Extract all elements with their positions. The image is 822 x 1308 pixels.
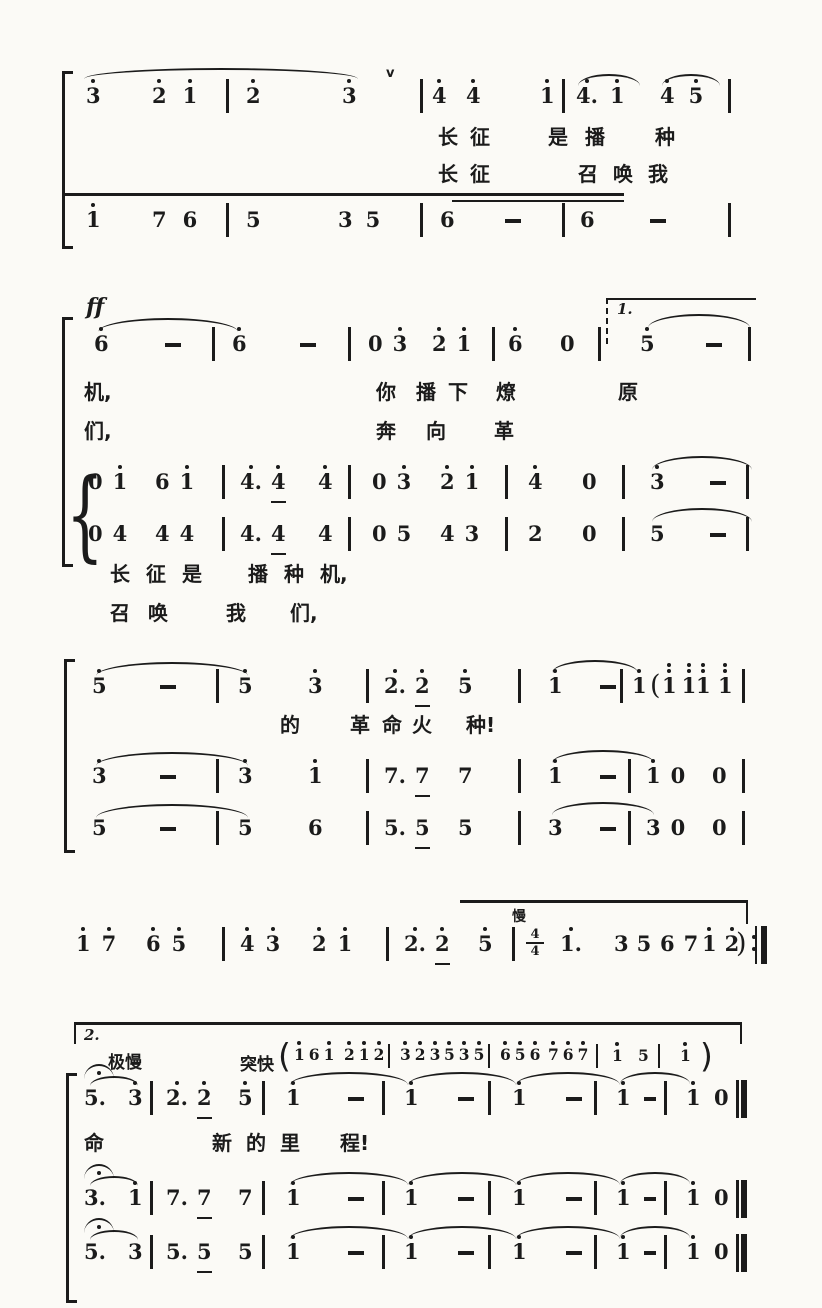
note-digit: 7 bbox=[684, 932, 699, 956]
note-digit: 1 bbox=[324, 1046, 335, 1064]
beam-group: 323 bbox=[400, 1046, 440, 1064]
note: 0 bbox=[712, 816, 727, 840]
octave-dots bbox=[317, 927, 321, 931]
octave-dots bbox=[175, 1081, 179, 1085]
dash-extension bbox=[458, 1097, 474, 1101]
note-digit: 1 bbox=[686, 1240, 701, 1264]
barline bbox=[628, 759, 631, 793]
note-digit: 3 bbox=[465, 522, 480, 546]
note: 1 bbox=[632, 674, 647, 698]
lyric-extension-line bbox=[452, 200, 624, 202]
note-digit: 7 bbox=[458, 764, 473, 788]
barline bbox=[562, 79, 565, 113]
octave-dots bbox=[393, 669, 397, 673]
note-digit: 2. bbox=[166, 1086, 188, 1110]
note-digit: 6 bbox=[94, 332, 109, 356]
note-digit: 1 bbox=[404, 1186, 419, 1210]
note-digit: 7 bbox=[578, 1046, 589, 1064]
note: 5 bbox=[238, 674, 253, 698]
note-digit: 1 bbox=[548, 764, 563, 788]
note-digit: 3 bbox=[128, 1240, 143, 1264]
note-digit: 5 bbox=[397, 522, 412, 546]
dash-extension bbox=[566, 1197, 582, 1201]
note-digit: 6 bbox=[309, 1046, 320, 1064]
note-digit: 3 bbox=[397, 470, 412, 494]
octave-dots bbox=[545, 79, 549, 83]
note-digit: 1 bbox=[128, 1186, 143, 1210]
lyric-syllable: 向 bbox=[426, 420, 446, 443]
note-digit: 3 bbox=[338, 208, 353, 232]
dash-extension bbox=[566, 1251, 582, 1255]
note: 5. bbox=[84, 1086, 106, 1110]
note: 1 bbox=[128, 1186, 143, 1210]
barline bbox=[382, 1081, 385, 1115]
note: 1 bbox=[512, 1186, 527, 1210]
octave-dots bbox=[157, 79, 161, 83]
beam-group: 05 bbox=[372, 522, 411, 546]
note: 1 bbox=[404, 1086, 419, 1110]
dash-extension bbox=[348, 1251, 364, 1255]
note-digit: 1 bbox=[646, 764, 661, 788]
note: 5 bbox=[238, 816, 253, 840]
second-ending-bracket bbox=[74, 1022, 742, 1044]
octave-dots bbox=[243, 1081, 247, 1085]
note: 1 bbox=[404, 1240, 419, 1264]
lyric-syllable: 征 bbox=[146, 563, 166, 586]
final-barline bbox=[736, 1234, 747, 1272]
note: 0 bbox=[582, 470, 597, 494]
barline bbox=[628, 811, 631, 845]
note-digit: 2 bbox=[344, 1046, 355, 1064]
beam-group: 67 bbox=[660, 932, 698, 956]
voice-brace: { bbox=[66, 462, 104, 570]
note-digit: 1 bbox=[686, 1186, 701, 1210]
slur-tie bbox=[96, 804, 248, 818]
beam-group: 44 bbox=[155, 522, 194, 546]
barline bbox=[150, 1081, 153, 1115]
slur-tie bbox=[578, 74, 640, 86]
lyric-syllable: 是 bbox=[548, 126, 568, 149]
barline bbox=[382, 1181, 385, 1215]
note: 4 bbox=[528, 470, 543, 494]
note-digit: 2 bbox=[435, 932, 450, 956]
note-digit: 4 bbox=[155, 522, 170, 546]
barline bbox=[222, 927, 225, 961]
note-digit: 4 bbox=[528, 470, 543, 494]
note-digit: 1 bbox=[696, 674, 711, 698]
barline bbox=[366, 669, 369, 703]
note-digit: 6 bbox=[308, 816, 323, 840]
beam-group: 76 bbox=[152, 208, 197, 232]
note-digit: 5. bbox=[384, 816, 406, 840]
note: 3 bbox=[128, 1240, 143, 1264]
dash-extension bbox=[600, 775, 616, 779]
note-digit: 1 bbox=[286, 1240, 301, 1264]
note-digit: 5 bbox=[444, 1046, 455, 1064]
note-digit: 3 bbox=[238, 764, 253, 788]
note-digit: 6 bbox=[155, 470, 170, 494]
note: 1 bbox=[548, 764, 563, 788]
note-digit: 0 bbox=[582, 522, 597, 546]
beam-group: 21 bbox=[432, 332, 471, 356]
barline bbox=[492, 327, 495, 361]
slur-tie bbox=[96, 662, 248, 676]
octave-dots bbox=[81, 927, 85, 931]
note: 6 bbox=[94, 332, 109, 356]
note-digit: 2 bbox=[528, 522, 543, 546]
note-digit: 2. bbox=[404, 932, 426, 956]
note: 3 bbox=[342, 84, 357, 108]
note: 5 bbox=[246, 208, 261, 232]
note-digit: 6 bbox=[580, 208, 595, 232]
barline bbox=[348, 517, 351, 551]
note-digit: 0 bbox=[372, 470, 387, 494]
note-digit: 1 bbox=[294, 1046, 305, 1064]
note-digit: 5 bbox=[415, 816, 430, 840]
note-digit: 1 bbox=[616, 1240, 631, 1264]
beam-group: 2.2 bbox=[384, 674, 430, 698]
note: 3 bbox=[548, 816, 563, 840]
note: 0 bbox=[714, 1186, 729, 1210]
note-digit: 6 bbox=[530, 1046, 541, 1064]
note-digit: 5 bbox=[366, 208, 381, 232]
dash-extension bbox=[160, 685, 176, 689]
ending-label: 1. bbox=[617, 302, 633, 317]
note: 4 bbox=[432, 84, 447, 108]
note-digit: 6 bbox=[146, 932, 161, 956]
octave-dots bbox=[413, 927, 417, 931]
octave-dots bbox=[347, 79, 351, 83]
note: 5 bbox=[638, 1046, 649, 1065]
note-digit: 3 bbox=[650, 470, 665, 494]
beam-group: 03 bbox=[368, 332, 407, 356]
barline bbox=[518, 669, 521, 703]
barline bbox=[382, 1235, 385, 1269]
parenthesis: ) bbox=[736, 930, 747, 957]
dash-extension bbox=[348, 1097, 364, 1101]
lyric-syllable: 我 bbox=[226, 602, 246, 625]
dash-extension bbox=[644, 1197, 656, 1201]
note: 1 bbox=[512, 1086, 527, 1110]
note-digit: 2 bbox=[415, 1046, 426, 1064]
octave-dots bbox=[440, 927, 444, 931]
slur-tie bbox=[90, 1176, 138, 1186]
lyric-syllable: 下 bbox=[448, 381, 468, 404]
lyric-syllable: 种 bbox=[284, 563, 304, 586]
dash-extension bbox=[160, 775, 176, 779]
note-digit: 2 bbox=[432, 332, 447, 356]
note-digit: 5 bbox=[689, 84, 704, 108]
final-barline bbox=[736, 1180, 747, 1218]
note-digit: 2 bbox=[440, 470, 455, 494]
dash-extension bbox=[644, 1251, 656, 1255]
beam-group: 2.2 bbox=[404, 932, 450, 956]
barline bbox=[226, 203, 229, 237]
beam-group: 11 bbox=[662, 674, 696, 698]
beam-group: 35 bbox=[338, 208, 380, 232]
lyric-syllable: 原 bbox=[618, 381, 638, 404]
slur-tie bbox=[408, 1226, 516, 1239]
note-digit: 1 bbox=[540, 84, 555, 108]
note: 5 bbox=[92, 816, 107, 840]
lyric-syllable: 命 bbox=[382, 714, 402, 737]
note-digit: 5 bbox=[92, 674, 107, 698]
note-digit: 5 bbox=[246, 208, 261, 232]
octave-dots bbox=[730, 927, 734, 931]
note-digit: 2 bbox=[246, 84, 261, 108]
octave-dots bbox=[118, 465, 122, 469]
lyric-syllable: 长 bbox=[110, 563, 130, 586]
barline bbox=[518, 759, 521, 793]
octave-dots bbox=[91, 79, 95, 83]
note: 3. bbox=[84, 1186, 106, 1210]
slur-tie bbox=[408, 1172, 516, 1185]
note-digit: 0 bbox=[712, 816, 727, 840]
dash-extension bbox=[505, 219, 521, 223]
note: 1. bbox=[560, 932, 582, 956]
barline bbox=[262, 1235, 265, 1269]
lyric-syllable: 播 bbox=[248, 563, 268, 586]
note-digit: 5 bbox=[515, 1046, 526, 1064]
note-digit: 3 bbox=[92, 764, 107, 788]
barline bbox=[746, 465, 749, 499]
slur-tie bbox=[84, 68, 358, 79]
note-digit: 7 bbox=[152, 208, 167, 232]
barline bbox=[366, 759, 369, 793]
barline bbox=[420, 203, 423, 237]
note: 1 bbox=[286, 1086, 301, 1110]
note-digit: 5 bbox=[238, 674, 253, 698]
note-digit: 4. bbox=[240, 470, 262, 494]
barline bbox=[505, 517, 508, 551]
barline bbox=[488, 1044, 490, 1068]
note-digit: 1 bbox=[610, 84, 625, 108]
note-digit: 4 bbox=[466, 84, 481, 108]
note-digit: 5 bbox=[638, 1047, 649, 1065]
slur-tie bbox=[620, 1072, 690, 1084]
beam-group: 2.2 bbox=[166, 1086, 212, 1110]
beam-group: 43 bbox=[240, 932, 280, 956]
barline bbox=[594, 1235, 597, 1269]
note-digit: 1 bbox=[286, 1086, 301, 1110]
octave-dots bbox=[343, 927, 347, 931]
barline bbox=[488, 1235, 491, 1269]
note-digit: 0 bbox=[671, 764, 686, 788]
note-digit: 1 bbox=[616, 1186, 631, 1210]
barline bbox=[420, 79, 423, 113]
octave-dots bbox=[691, 1235, 695, 1239]
barline bbox=[226, 79, 229, 113]
note-digit: 1. bbox=[560, 932, 582, 956]
beam-group: 17 bbox=[76, 932, 116, 956]
note: 5 bbox=[478, 932, 493, 956]
beam-group: 21 bbox=[152, 84, 197, 108]
note-digit: 6 bbox=[183, 208, 198, 232]
note-digit: 7 bbox=[197, 1186, 212, 1210]
note: 1 bbox=[512, 1240, 527, 1264]
dash-extension bbox=[348, 1197, 364, 1201]
beam-group: 161 bbox=[294, 1046, 334, 1064]
note-digit: 5 bbox=[92, 816, 107, 840]
note-digit: 1 bbox=[465, 470, 480, 494]
barline bbox=[386, 927, 389, 961]
note: 7 bbox=[238, 1186, 253, 1210]
note-digit: 1 bbox=[86, 208, 101, 232]
beam-group: 03 bbox=[372, 470, 411, 494]
lyric-syllable: 长 bbox=[438, 163, 458, 186]
octave-dots bbox=[107, 927, 111, 931]
octave-dots bbox=[701, 663, 705, 673]
barline bbox=[348, 465, 351, 499]
beam-line bbox=[435, 963, 450, 965]
lyric-syllable: 长 bbox=[438, 126, 458, 149]
note: 0 bbox=[714, 1086, 729, 1110]
barline bbox=[222, 465, 225, 499]
octave-dots bbox=[177, 927, 181, 931]
octave-dots bbox=[151, 927, 155, 931]
beam-group: 30 bbox=[646, 816, 685, 840]
slur-tie bbox=[652, 508, 752, 522]
slur-tie bbox=[620, 1172, 690, 1184]
note: 1 bbox=[616, 1186, 631, 1210]
lyric-syllable: 革 bbox=[494, 420, 514, 443]
note-digit: 4 bbox=[113, 522, 128, 546]
note-digit: 3 bbox=[128, 1086, 143, 1110]
lyric-syllable: 播 bbox=[416, 381, 436, 404]
dash-extension bbox=[650, 219, 666, 223]
lyric-syllable: 火 bbox=[412, 714, 432, 737]
note-digit: 2. bbox=[384, 674, 406, 698]
note: 1 bbox=[616, 1086, 631, 1110]
note-digit: 2 bbox=[152, 84, 167, 108]
note-digit: 0 bbox=[714, 1186, 729, 1210]
lyric-syllable: 征 bbox=[470, 163, 490, 186]
note: 1 bbox=[718, 674, 733, 698]
note-digit: 5 bbox=[474, 1046, 485, 1064]
system-bracket bbox=[64, 660, 73, 852]
beam-group: 10 bbox=[646, 764, 685, 788]
octave-dots bbox=[483, 927, 487, 931]
note-digit: 1 bbox=[612, 1047, 623, 1065]
system-bracket bbox=[66, 1074, 75, 1302]
note: 4 bbox=[318, 470, 333, 494]
note-digit: 1 bbox=[338, 932, 353, 956]
note: 1 bbox=[548, 674, 563, 698]
octave-dots bbox=[313, 669, 317, 673]
barline bbox=[622, 465, 625, 499]
note-digit: 4 bbox=[240, 932, 255, 956]
barline bbox=[388, 1044, 390, 1068]
note-digit: 0 bbox=[714, 1086, 729, 1110]
note-digit: 4 bbox=[180, 522, 195, 546]
octave-dots bbox=[276, 465, 280, 469]
octave-dots bbox=[202, 1081, 206, 1085]
slur-tie bbox=[290, 1172, 408, 1185]
note-digit: 7 bbox=[548, 1046, 559, 1064]
note: 5 bbox=[238, 1086, 253, 1110]
note-digit: 5 bbox=[238, 1086, 253, 1110]
barline bbox=[742, 669, 745, 703]
beam-group: 212 bbox=[344, 1046, 384, 1064]
note: 7 bbox=[458, 764, 473, 788]
beam-group: 4.4 bbox=[240, 470, 286, 494]
parenthesis: ( bbox=[650, 672, 661, 699]
barline bbox=[150, 1235, 153, 1269]
sheet-music-page: 321234414.14517653566长征是播种长征召唤我v66032160… bbox=[0, 0, 822, 1308]
octave-dots bbox=[687, 663, 691, 673]
note-digit: 1 bbox=[512, 1086, 527, 1110]
octave-dots bbox=[271, 927, 275, 931]
note: 6 bbox=[232, 332, 247, 356]
note-digit: 3 bbox=[266, 932, 281, 956]
note-digit: 3 bbox=[646, 816, 661, 840]
breath-mark-icon: v bbox=[386, 66, 394, 81]
note-digit: 1 bbox=[457, 332, 472, 356]
note-digit: 1 bbox=[662, 674, 677, 698]
octave-dots bbox=[185, 465, 189, 469]
lyric-syllable: 们, bbox=[84, 420, 112, 443]
slur-tie bbox=[90, 1230, 138, 1240]
note-digit: 6 bbox=[508, 332, 523, 356]
barline bbox=[505, 465, 508, 499]
barline bbox=[222, 517, 225, 551]
note: 3 bbox=[308, 674, 323, 698]
barline bbox=[742, 811, 745, 845]
barline bbox=[658, 1044, 660, 1068]
note-digit: 4. bbox=[240, 522, 262, 546]
octave-dots bbox=[723, 663, 727, 673]
note: 6 bbox=[508, 332, 523, 356]
beam-group: 45 bbox=[660, 84, 703, 108]
slur-tie bbox=[552, 802, 654, 815]
note-digit: 0 bbox=[582, 470, 597, 494]
note-digit: 5. bbox=[166, 1240, 188, 1264]
dash-extension bbox=[458, 1197, 474, 1201]
note-digit: 3 bbox=[459, 1046, 470, 1064]
note-digit: 5. bbox=[84, 1240, 106, 1264]
note: 5. bbox=[84, 1240, 106, 1264]
beam-line bbox=[415, 847, 430, 849]
lyric-syllable: 召 bbox=[110, 602, 130, 625]
beam-group: 43 bbox=[440, 522, 479, 546]
octave-dots bbox=[513, 327, 517, 331]
note-digit: 1 bbox=[183, 84, 198, 108]
octave-dots bbox=[463, 669, 467, 673]
lyric-syllable: 们, bbox=[290, 602, 318, 625]
note-digit: 1 bbox=[512, 1240, 527, 1264]
beam-group: 5.5 bbox=[166, 1240, 212, 1264]
octave-dots bbox=[707, 927, 711, 931]
lyric-syllable: 的 bbox=[280, 714, 300, 737]
note-digit: 4 bbox=[660, 84, 675, 108]
note: 1 bbox=[686, 1186, 701, 1210]
note-digit: 3 bbox=[308, 674, 323, 698]
note-digit: 0 bbox=[714, 1240, 729, 1264]
note-digit: 1 bbox=[616, 1086, 631, 1110]
note-digit: 1 bbox=[702, 932, 717, 956]
note-digit: 5 bbox=[238, 1240, 253, 1264]
note-digit: 5 bbox=[637, 932, 652, 956]
barline bbox=[742, 759, 745, 793]
dash-extension bbox=[710, 533, 726, 537]
note-digit: 1 bbox=[548, 674, 563, 698]
note-digit: 3. bbox=[84, 1186, 106, 1210]
note: 1 bbox=[616, 1240, 631, 1264]
barline bbox=[746, 517, 749, 551]
note-digit: 0 bbox=[368, 332, 383, 356]
lyric-syllable: 我 bbox=[648, 163, 668, 186]
note-digit: 1 bbox=[404, 1086, 419, 1110]
